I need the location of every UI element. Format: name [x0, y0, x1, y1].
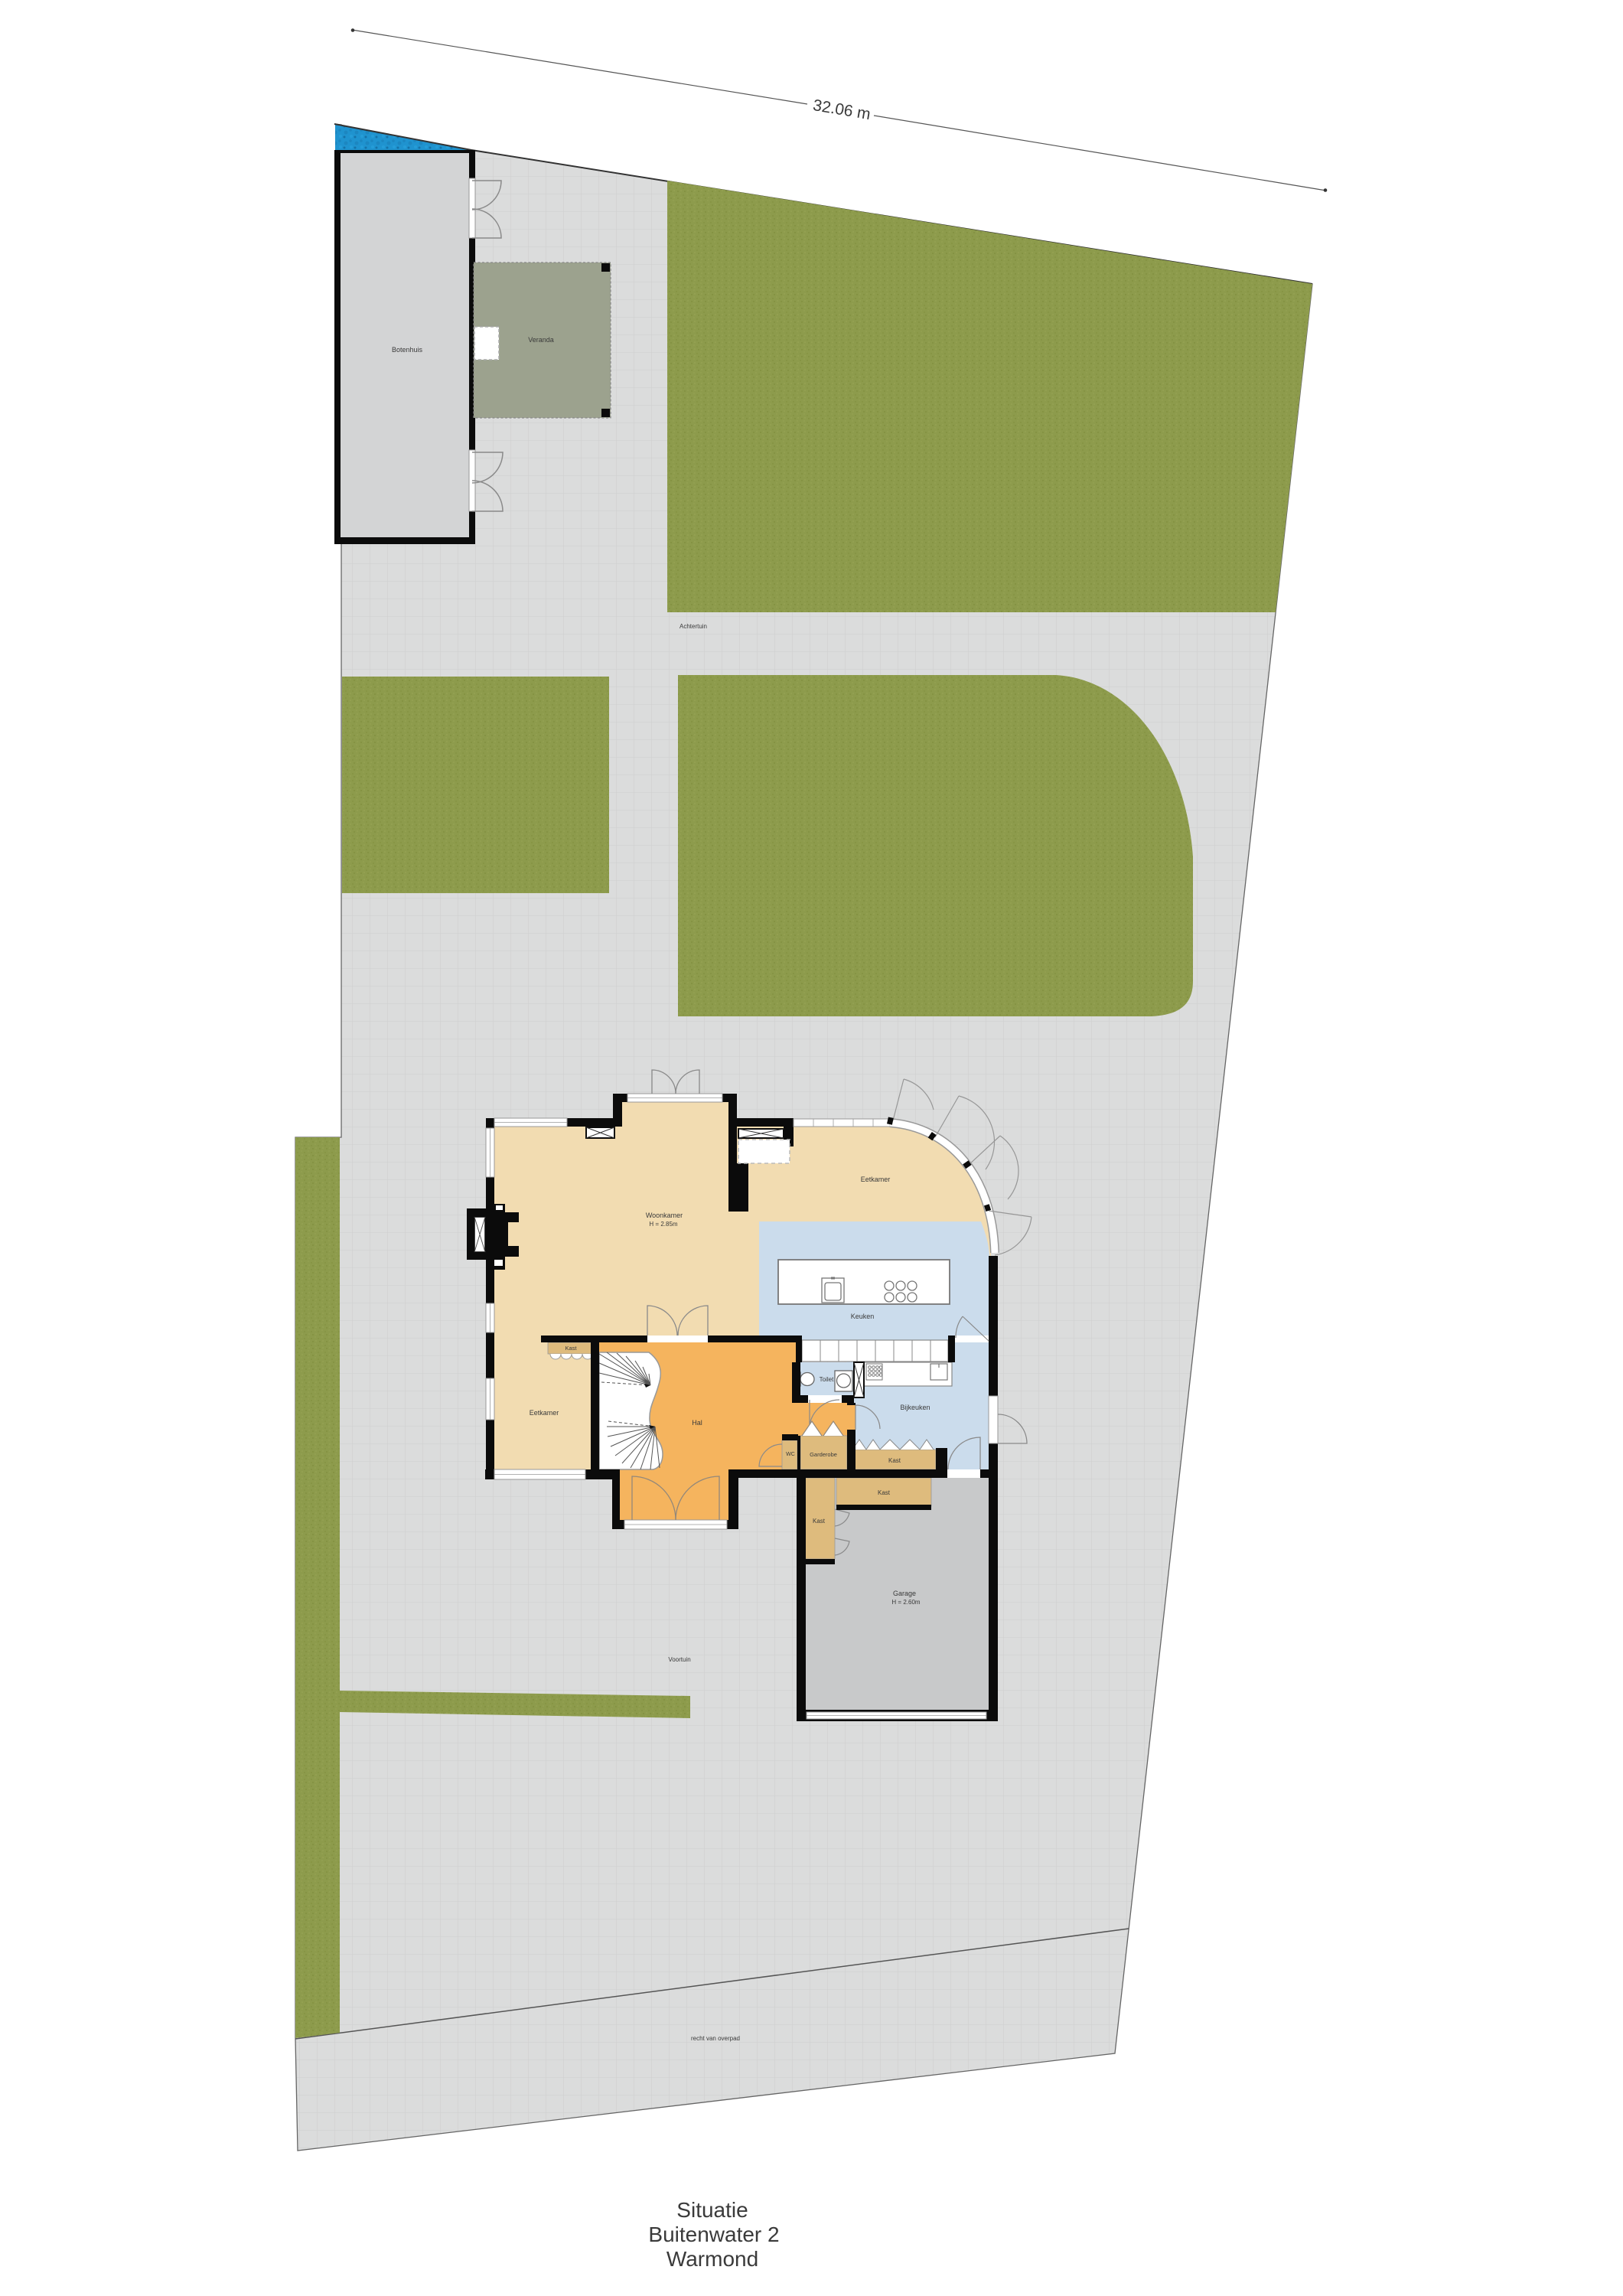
svg-text:Hal: Hal	[692, 1419, 702, 1427]
svg-text:Kast: Kast	[888, 1457, 901, 1464]
svg-text:Garage: Garage	[893, 1590, 916, 1597]
svg-text:Kast: Kast	[813, 1518, 826, 1525]
svg-text:Garderobe: Garderobe	[810, 1451, 837, 1458]
svg-text:Woonkamer: Woonkamer	[646, 1212, 683, 1219]
svg-text:Situatie: Situatie	[676, 2198, 748, 2222]
svg-text:32.06 m: 32.06 m	[812, 96, 872, 123]
svg-text:Botenhuis: Botenhuis	[392, 346, 423, 354]
svg-text:Keuken: Keuken	[851, 1313, 875, 1320]
svg-text:Kast: Kast	[878, 1489, 891, 1496]
svg-text:Warmond: Warmond	[666, 2247, 758, 2271]
svg-text:Buitenwater 2: Buitenwater 2	[648, 2223, 779, 2246]
svg-text:WC: WC	[786, 1452, 795, 1457]
svg-text:Eetkamer: Eetkamer	[530, 1409, 559, 1417]
svg-text:Veranda: Veranda	[528, 336, 554, 344]
svg-text:H = 2.85m: H = 2.85m	[649, 1221, 677, 1228]
svg-text:Bijkeuken: Bijkeuken	[900, 1404, 930, 1411]
svg-text:recht van overpad: recht van overpad	[691, 2035, 740, 2042]
svg-text:Kast: Kast	[565, 1345, 577, 1352]
svg-text:Toilet: Toilet	[820, 1376, 834, 1383]
svg-text:H = 2.60m: H = 2.60m	[891, 1599, 920, 1606]
svg-text:Achtertuin: Achtertuin	[680, 623, 707, 630]
svg-text:Voortuin: Voortuin	[668, 1656, 690, 1663]
svg-text:Eetkamer: Eetkamer	[861, 1176, 891, 1183]
